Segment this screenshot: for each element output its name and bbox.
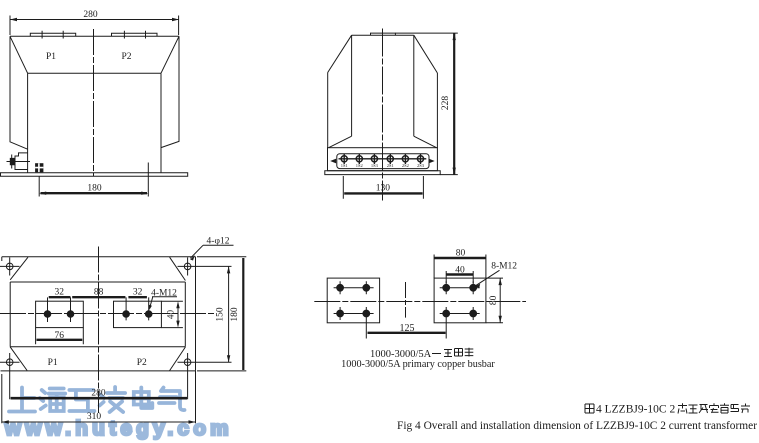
svg-text:P2: P2 xyxy=(121,52,131,62)
svg-text:40: 40 xyxy=(455,265,465,275)
svg-text:2S3: 2S3 xyxy=(417,163,425,168)
svg-text:1S3: 1S3 xyxy=(371,163,379,168)
svg-text:130: 130 xyxy=(376,184,391,194)
svg-text:40: 40 xyxy=(166,310,176,320)
svg-text:180: 180 xyxy=(230,307,240,322)
svg-text:P1: P1 xyxy=(48,358,58,368)
svg-text:228: 228 xyxy=(441,96,451,111)
svg-text:180: 180 xyxy=(87,184,102,194)
svg-text:P2: P2 xyxy=(137,358,147,368)
svg-text:125: 125 xyxy=(400,323,415,334)
svg-text:310: 310 xyxy=(87,412,102,422)
svg-text:32: 32 xyxy=(133,288,143,298)
svg-text:150: 150 xyxy=(215,307,225,322)
svg-text:280: 280 xyxy=(83,10,98,20)
svg-text:8-M12: 8-M12 xyxy=(491,261,517,271)
svg-text:1000-3000/5A primary copper bu: 1000-3000/5A primary copper busbar xyxy=(341,359,495,370)
svg-text:80: 80 xyxy=(456,248,466,258)
svg-text:32: 32 xyxy=(55,288,65,298)
svg-text:www.hutegy.com: www.hutegy.com xyxy=(4,417,233,440)
svg-text:P1: P1 xyxy=(46,52,56,62)
svg-text:2S2: 2S2 xyxy=(402,163,409,168)
svg-text:Fig 4 Overall and installation: Fig 4 Overall and installation dimension… xyxy=(397,420,757,432)
svg-text:80: 80 xyxy=(489,295,499,305)
svg-text:4 LZZBJ9-10C 2: 4 LZZBJ9-10C 2 xyxy=(596,404,675,416)
svg-text:2S1: 2S1 xyxy=(387,163,394,168)
svg-text:88: 88 xyxy=(94,288,104,298)
svg-text:1S1: 1S1 xyxy=(341,163,348,168)
svg-text:76: 76 xyxy=(55,331,65,341)
svg-text:280: 280 xyxy=(91,389,106,399)
svg-text:1S2: 1S2 xyxy=(356,163,363,168)
